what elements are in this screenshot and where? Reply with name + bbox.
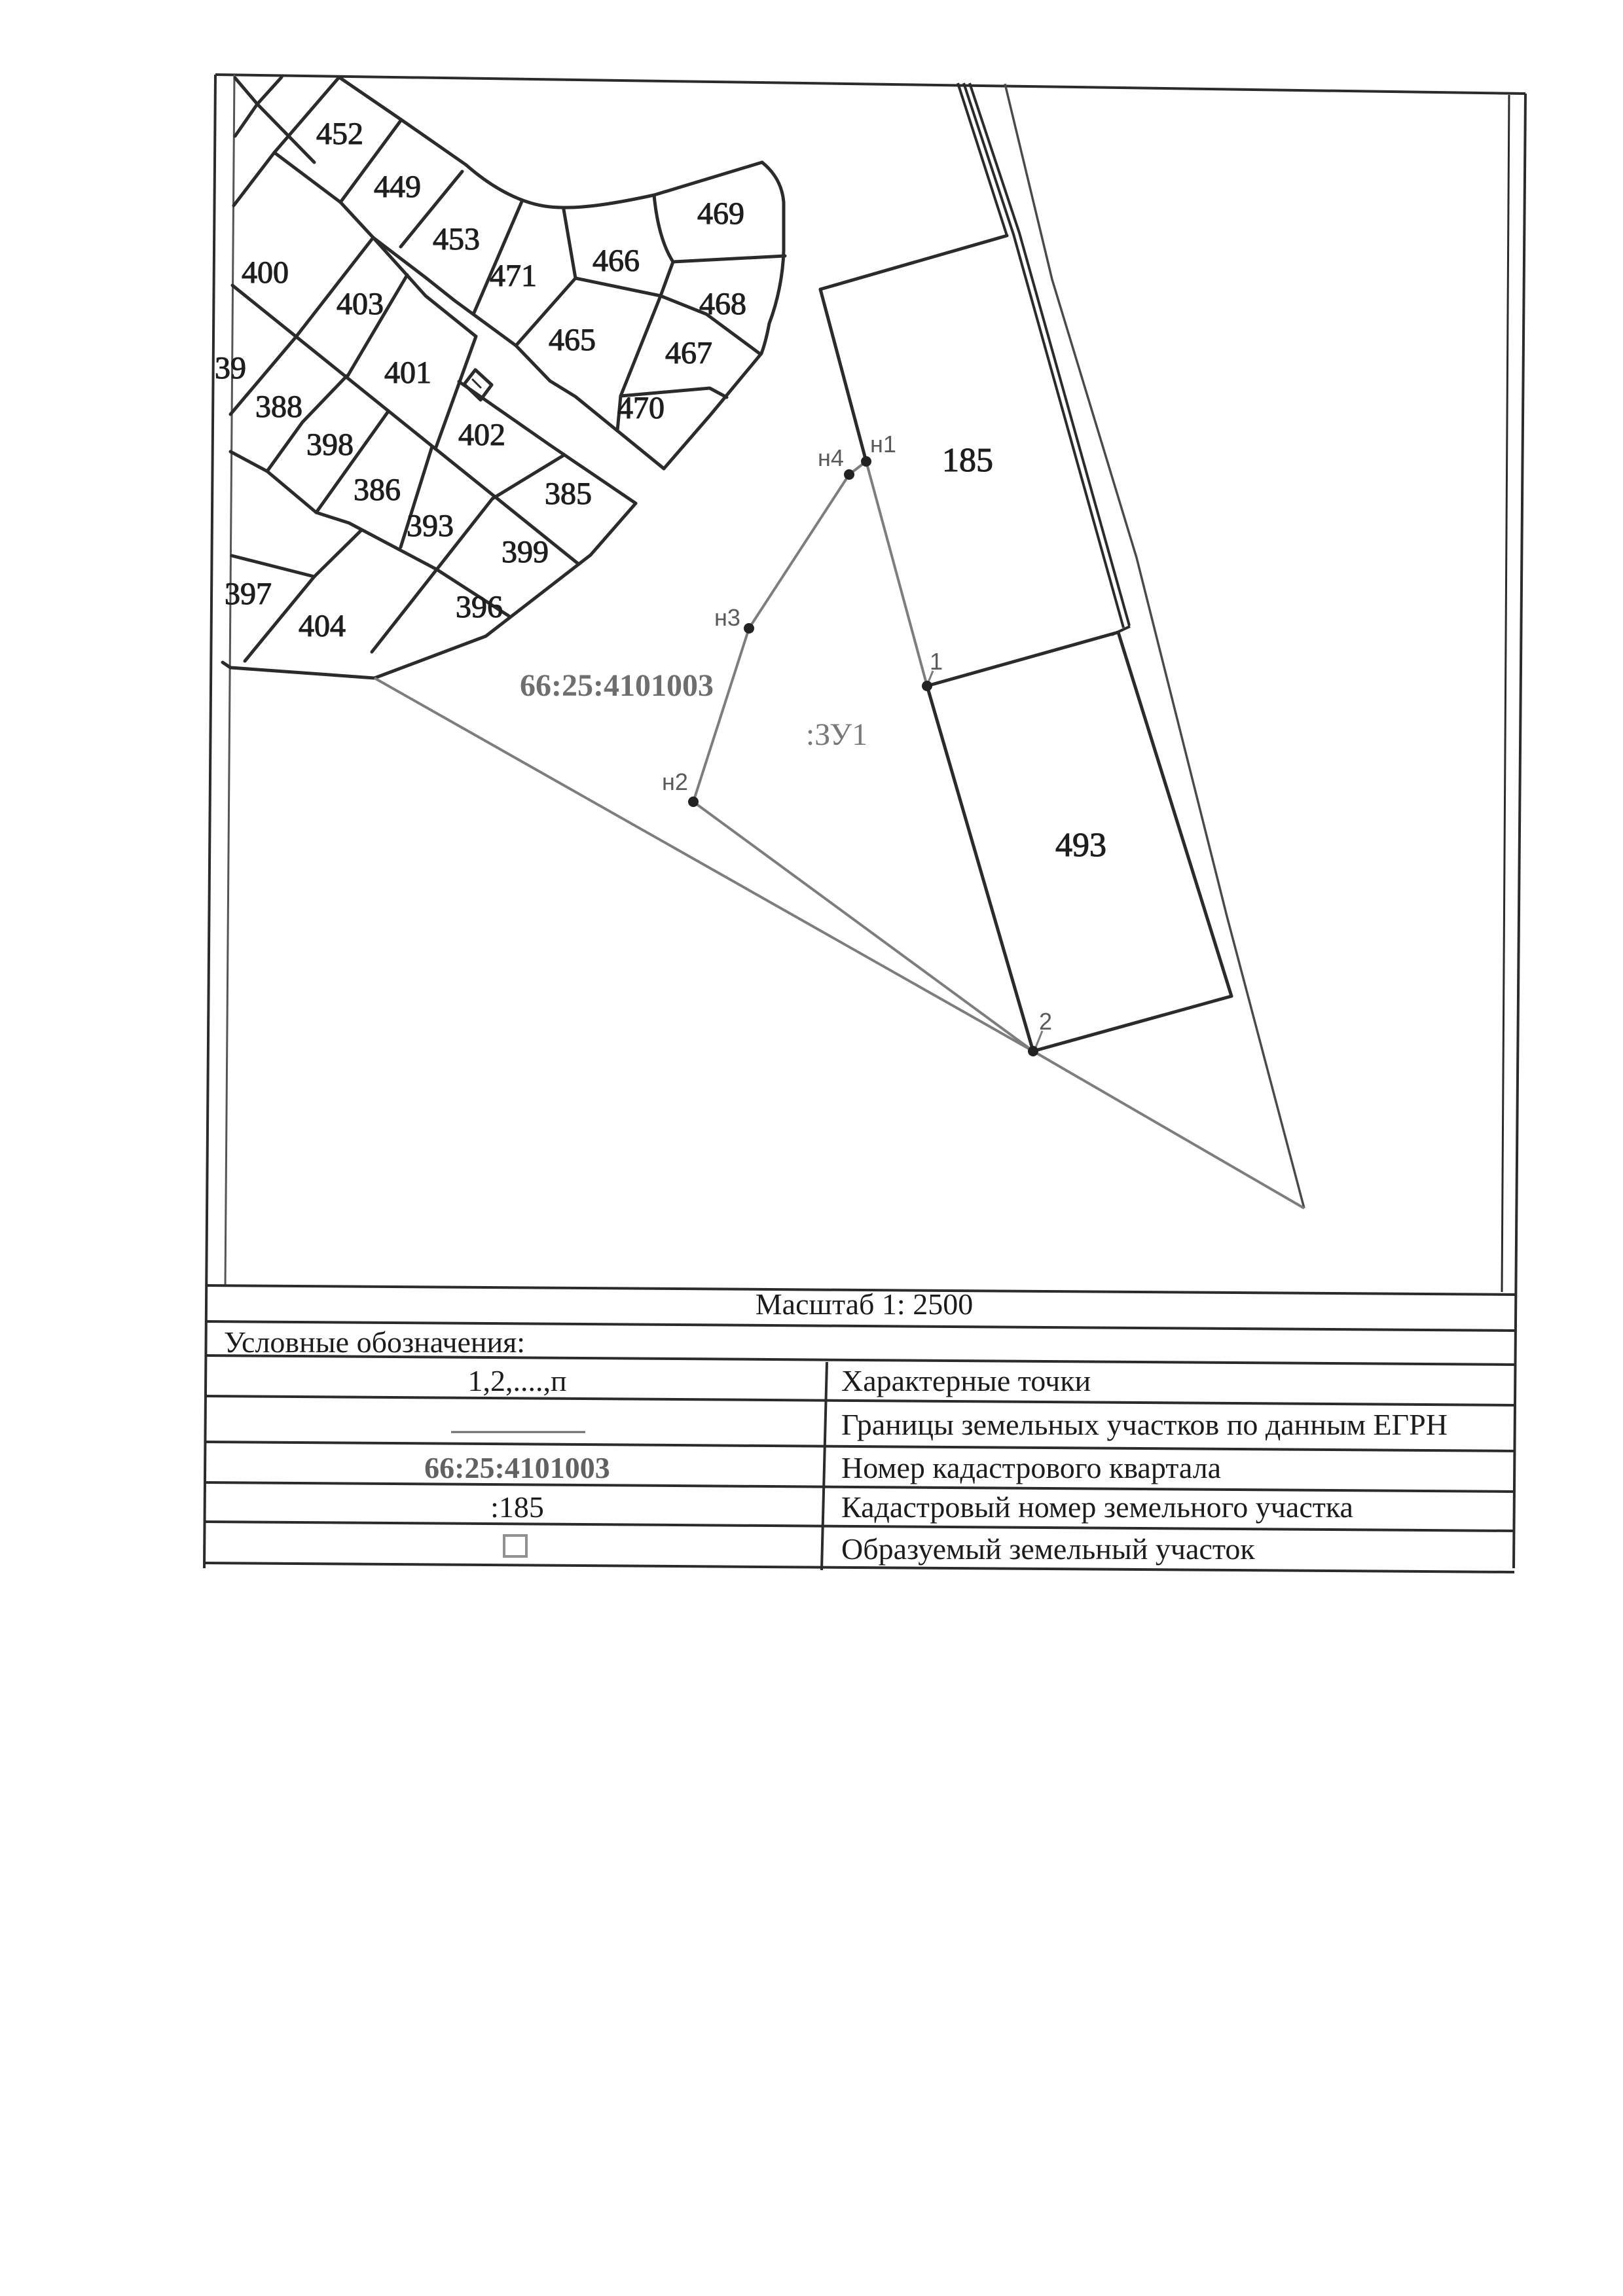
svg-text:404: 404 [299, 609, 346, 643]
svg-text:н3: н3 [714, 604, 740, 631]
svg-text:403: 403 [337, 287, 384, 321]
svg-text:Кадастровый номер земельного у: Кадастровый номер земельного участка [841, 1490, 1353, 1524]
svg-text:466: 466 [593, 243, 640, 278]
svg-text:396: 396 [456, 590, 503, 624]
svg-text:Границы земельных участков по: Границы земельных участков по данным ЕГР… [841, 1408, 1448, 1441]
svg-text::185: :185 [490, 1490, 544, 1524]
svg-text::ЗУ1: :ЗУ1 [806, 717, 867, 752]
svg-text:н2: н2 [662, 768, 688, 795]
svg-text:467: 467 [665, 336, 712, 370]
svg-text:Номер кадастрового квартала: Номер кадастрового квартала [841, 1451, 1221, 1484]
svg-text:493: 493 [1055, 827, 1106, 864]
svg-text:66:25:4101003: 66:25:4101003 [424, 1451, 610, 1484]
svg-text:388: 388 [255, 389, 302, 424]
svg-text:1: 1 [930, 648, 943, 675]
svg-text:н4: н4 [818, 444, 844, 471]
svg-text:449: 449 [374, 170, 421, 204]
svg-text:1,2,....,п: 1,2,....,п [467, 1364, 566, 1397]
svg-text:398: 398 [306, 427, 354, 462]
svg-text:465: 465 [549, 323, 596, 357]
svg-text:39: 39 [215, 351, 246, 386]
svg-text:397: 397 [225, 577, 272, 611]
svg-text:н1: н1 [870, 431, 896, 457]
svg-text:66:25:4101003: 66:25:4101003 [520, 668, 714, 703]
svg-text:Образуемый земельный участок: Образуемый земельный участок [841, 1532, 1255, 1566]
svg-text:385: 385 [545, 476, 592, 511]
svg-text:453: 453 [433, 222, 480, 257]
svg-text:452: 452 [316, 117, 363, 151]
svg-text:393: 393 [407, 509, 454, 543]
svg-text:470: 470 [617, 391, 665, 425]
svg-text:400: 400 [242, 255, 289, 290]
svg-text:471: 471 [490, 259, 537, 293]
svg-text:Условные обозначения:: Условные обозначения: [224, 1325, 525, 1359]
svg-text:401: 401 [384, 355, 431, 390]
svg-text:185: 185 [942, 442, 993, 479]
svg-text:468: 468 [699, 287, 746, 321]
svg-text:Масштаб 1: 2500: Масштаб 1: 2500 [756, 1287, 973, 1321]
svg-text:402: 402 [458, 418, 505, 452]
svg-text:469: 469 [697, 196, 744, 231]
svg-text:399: 399 [501, 535, 549, 569]
svg-text:2: 2 [1039, 1008, 1052, 1035]
svg-text:Характерные точки: Характерные точки [841, 1364, 1091, 1397]
svg-text:386: 386 [354, 473, 401, 507]
